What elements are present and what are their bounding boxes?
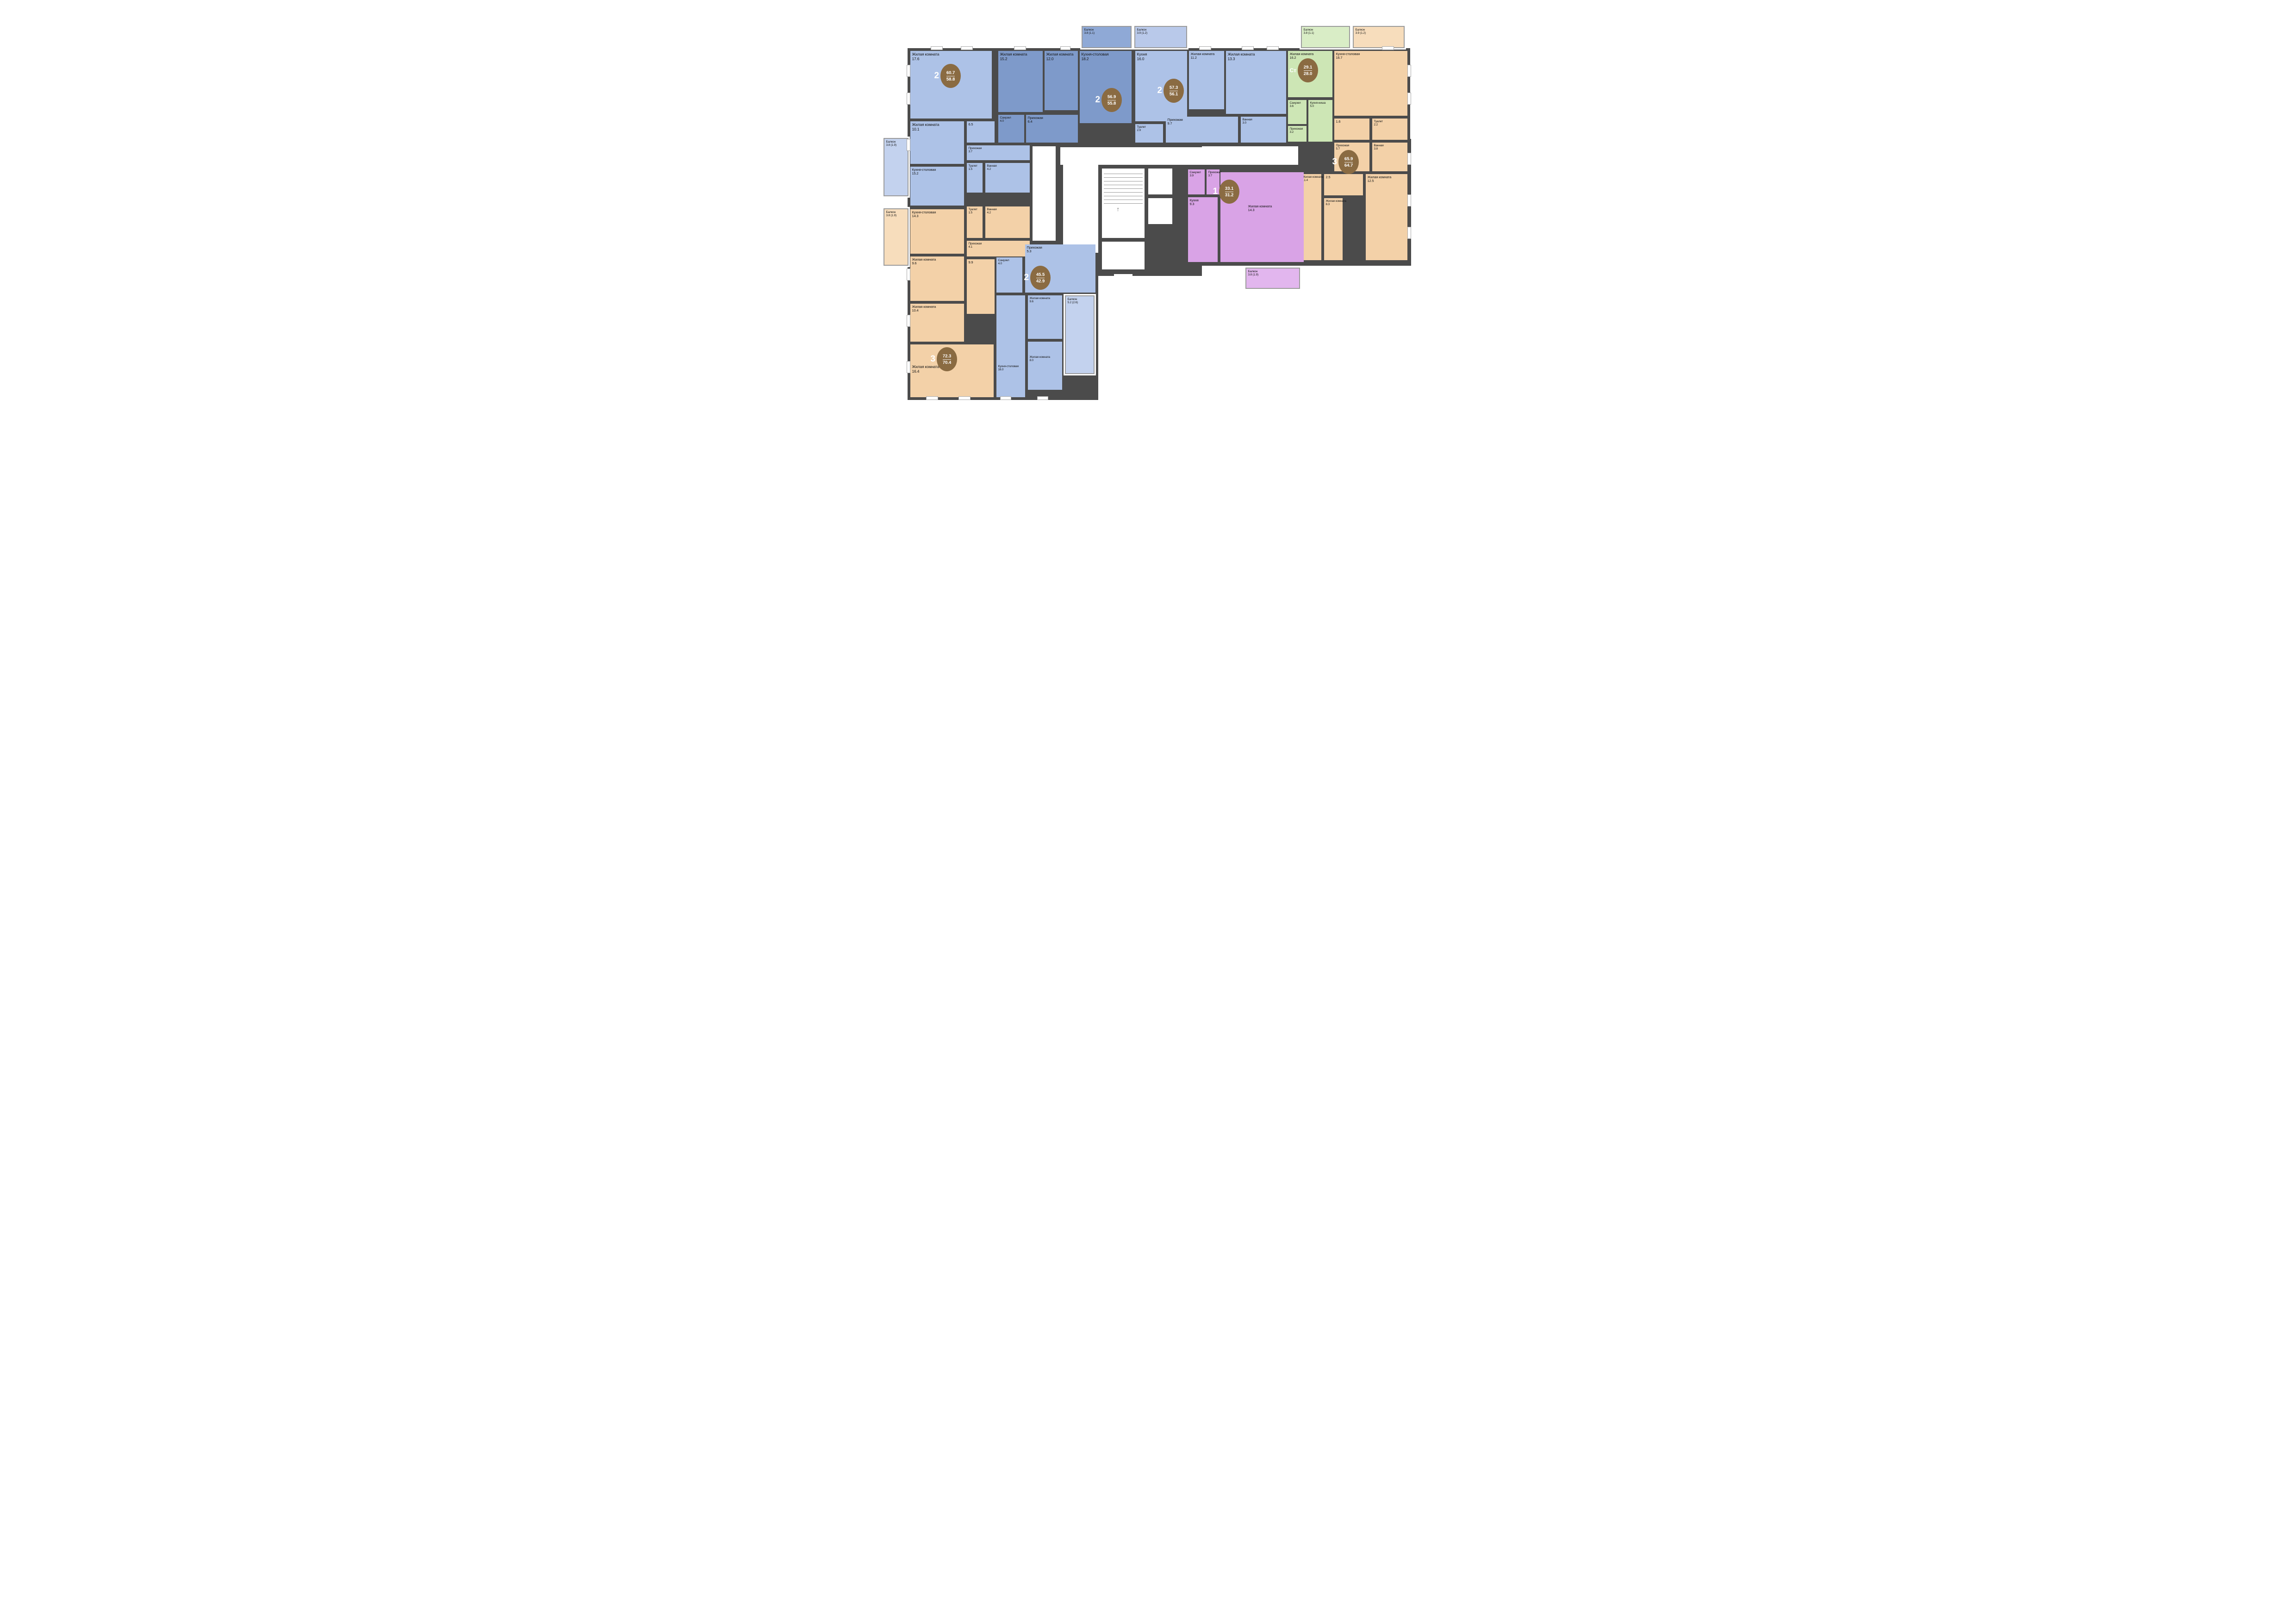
apartment-45-5-living-room[interactable]: Жилая комната8.0 — [1028, 342, 1062, 390]
apartment-33-1-balcony[interactable]: Балкон3.8 (1.9) — [1245, 268, 1300, 289]
apartment-72-3-kitchen-dining[interactable]: Кухня-столовая14.3 — [910, 209, 964, 254]
window — [1407, 227, 1411, 239]
apartment-65-9-bathroom[interactable]: Ванная3.8 — [1372, 143, 1407, 171]
apartment-60-7-living-room[interactable]: Жилая комната10.1 — [910, 121, 964, 164]
window — [1407, 194, 1411, 206]
apartment-57-3-bathroom[interactable]: Ванная3.0 — [1241, 117, 1286, 143]
apartment-29-1-kitchen-niche[interactable]: Кухня-ниша5.0 — [1308, 100, 1332, 142]
area-badge-circle: 33.131.2 — [1219, 180, 1239, 204]
apartment-65-9-living-room[interactable]: Жилая комната11.4 — [1301, 174, 1321, 260]
window — [1382, 46, 1394, 50]
apartment-57-3-living-room[interactable]: Жилая комната11.2 — [1189, 51, 1224, 109]
stairs-up-arrow: ↑ — [1117, 206, 1120, 212]
apartment-56-9-living-room[interactable]: Жилая комната12.0 — [1045, 51, 1078, 110]
apartment-45-5-kitchen-dining[interactable]: Кухня-столовая16.0 — [996, 295, 1025, 397]
apartment-72-3-hall[interactable]: 9.9 — [967, 259, 995, 314]
entrance-lobby — [1102, 242, 1145, 269]
apartment-33-1-badge[interactable]: 1 33.131.2 — [1213, 180, 1240, 204]
apartment-56-9-bathroom[interactable]: Санузел4.0 — [998, 115, 1024, 143]
apartment-29-1-entry-hall[interactable]: Прихожая3.2 — [1288, 126, 1307, 142]
area-badge-circle: 45.542.9 — [1030, 266, 1051, 290]
apartment-65-9-living-room[interactable]: Жилая комната8.3 — [1324, 198, 1343, 260]
apartment-60-7-balcony[interactable]: Балкон3.8 (1.9) — [884, 138, 908, 196]
corridor-area — [1060, 147, 1297, 165]
apartment-60-7-entry-hall[interactable]: Прихожая3.7 — [967, 145, 1030, 160]
apartment-60-7-hall[interactable]: 6.5 — [967, 121, 995, 143]
apartment-72-3-toilet[interactable]: Туалет1.5 — [967, 206, 983, 238]
apartment-60-7-toilet[interactable]: Туалет1.5 — [967, 163, 983, 193]
apartment-72-3-badge[interactable]: 3 72.370.4 — [931, 347, 958, 371]
floor-plan: ↑ Жилая комната17.6 Жилая комната10.1 6.… — [861, 0, 1435, 406]
apartment-65-9-balcony[interactable]: Балкон3.9 (1.2) — [1353, 26, 1405, 48]
window — [907, 93, 910, 105]
apartment-72-3-living-room[interactable]: Жилая комната9.6 — [910, 256, 964, 301]
apartment-60-7-bathroom[interactable]: Ванная4.2 — [985, 163, 1030, 193]
apartment-45-5-balcony[interactable]: Балкон5.2 (2.6) — [1065, 295, 1095, 374]
stairs — [1104, 170, 1143, 206]
apartment-33-1-kitchen[interactable]: Кухня9.3 — [1188, 197, 1218, 262]
apartment-56-9-badge[interactable]: 2 56.955.8 — [1095, 88, 1122, 112]
window — [907, 315, 910, 327]
window — [958, 396, 971, 400]
apartment-65-9-living-room[interactable]: Жилая комната12.5 — [1366, 174, 1407, 260]
area-badge-circle: 29.128.0 — [1298, 58, 1318, 82]
window — [907, 269, 910, 281]
apartment-56-9-living-room[interactable]: Жилая комната15.2 — [998, 51, 1043, 112]
elevator-shaft — [1148, 169, 1172, 194]
window — [961, 46, 973, 50]
apartment-33-1-bathroom[interactable]: Санузел3.9 — [1188, 169, 1205, 194]
window — [926, 396, 938, 400]
window — [1199, 46, 1211, 50]
apartment-29-1-balcony[interactable]: Балкон3.8 (1.1) — [1301, 26, 1350, 48]
window — [1000, 396, 1011, 400]
apartment-57-3-badge[interactable]: 2 57.356.1 — [1157, 79, 1184, 103]
apartment-45-5-living-room[interactable]: Жилая комната9.6 — [1028, 295, 1062, 339]
window — [1407, 93, 1411, 105]
apartment-60-7-kitchen-dining[interactable]: Кухня-столовая15.2 — [910, 167, 964, 206]
apartment-72-3-entry-hall[interactable]: Прихожая4.1 — [967, 241, 1030, 256]
apartment-72-3-bathroom[interactable]: Ванная4.2 — [985, 206, 1030, 238]
area-badge-circle: 60.758.8 — [940, 64, 961, 88]
window — [1037, 396, 1048, 400]
lobby-area — [1063, 165, 1098, 253]
window — [1242, 46, 1254, 50]
apartment-65-9-kitchen-dining[interactable]: Кухня-столовая16.7 — [1334, 51, 1407, 116]
apartment-65-9-badge[interactable]: 3 65.964.7 — [1332, 150, 1359, 174]
area-badge-circle: 65.964.7 — [1338, 150, 1359, 174]
apartment-56-9-balcony[interactable]: Балкон3.8 (1.1) — [1082, 26, 1132, 48]
window — [1267, 46, 1279, 50]
window — [1407, 153, 1411, 165]
apartment-65-9-hall[interactable]: 1.6 — [1334, 119, 1369, 140]
window — [907, 361, 910, 373]
apartment-57-3-living-room[interactable]: Жилая комната13.3 — [1226, 51, 1286, 114]
window — [1060, 46, 1070, 50]
apartment-60-7-badge[interactable]: 2 60.758.8 — [934, 64, 961, 88]
apartment-29-1-badge[interactable]: Ст 29.128.0 — [1290, 58, 1319, 82]
window — [931, 46, 943, 50]
apartment-45-5-bathroom[interactable]: Санузел4.0 — [996, 257, 1022, 293]
apartment-56-9-entry-hall[interactable]: Прихожая6.4 — [1026, 115, 1078, 143]
apartment-57-3-balcony[interactable]: Балкон3.9 (1.2) — [1134, 26, 1187, 48]
area-badge-circle: 72.370.4 — [937, 347, 957, 371]
apartment-65-9-toilet[interactable]: Туалет2.2 — [1372, 119, 1407, 140]
window — [907, 139, 910, 151]
apartment-29-1-bathroom[interactable]: Санузел3.6 — [1288, 100, 1307, 124]
apartment-57-3-toilet[interactable]: Туалет2.9 — [1135, 124, 1163, 143]
apartment-72-3-balcony[interactable]: Балкон3.8 (1.9) — [884, 208, 908, 266]
apartment-72-3-living-room[interactable]: Жилая комната10.4 — [910, 304, 964, 342]
apartment-57-3-entry-hall[interactable]: Прихожая9.7 — [1166, 117, 1238, 143]
entrance-door-gap — [1114, 274, 1132, 279]
window — [1407, 65, 1411, 77]
apartment-65-9-hall[interactable]: 2.5 — [1324, 174, 1363, 195]
apartment-45-5-badge[interactable]: 2 45.542.9 — [1024, 266, 1051, 290]
elevator-shaft — [1148, 198, 1172, 224]
area-badge-circle: 56.955.8 — [1101, 88, 1122, 112]
window — [907, 65, 910, 77]
apartment-56-9-kitchen-dining[interactable]: Кухня-столовая18.2 — [1080, 51, 1132, 123]
window — [1014, 46, 1026, 50]
area-badge-circle: 57.356.1 — [1164, 79, 1184, 103]
